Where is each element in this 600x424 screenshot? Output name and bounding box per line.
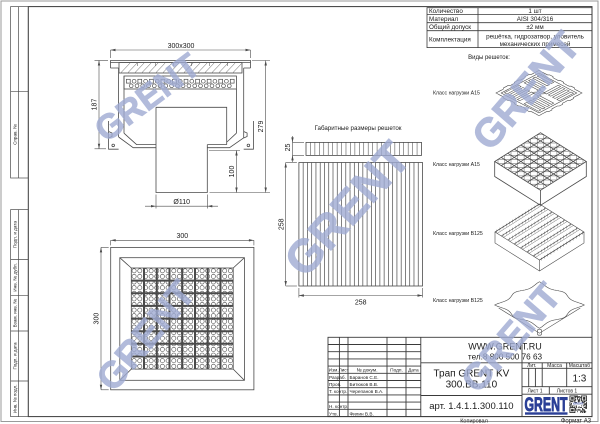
svg-text:Разраб.: Разраб. [329, 375, 346, 380]
svg-text:Лит.: Лит. [527, 363, 536, 369]
svg-text:Т. контр.: Т. контр. [329, 389, 347, 394]
svg-text:Н. контр.: Н. контр. [329, 404, 348, 409]
svg-text:25: 25 [285, 144, 292, 152]
svg-text:Материал: Материал [429, 16, 459, 23]
svg-text:258: 258 [355, 300, 367, 307]
svg-text:Подп. и дата: Подп. и дата [13, 221, 18, 249]
svg-text:№ докум.: № докум. [356, 368, 377, 374]
svg-text:Лист: Лист [339, 368, 350, 373]
svg-text:Справ. №: Справ. № [13, 124, 18, 145]
svg-text:258: 258 [278, 218, 285, 230]
svg-text:Подп. и дата: Подп. и дата [13, 342, 18, 370]
svg-text:Баранов С.Е.: Баранов С.Е. [350, 375, 379, 380]
svg-text:1 шт: 1 шт [528, 8, 541, 15]
svg-text:279: 279 [258, 121, 265, 133]
svg-text:Черепанов В.А.: Черепанов В.А. [350, 389, 384, 394]
svg-text:Габаритные размеры решеток: Габаритные размеры решеток [315, 125, 402, 132]
svg-text:Инв. № подл.: Инв. № подл. [13, 384, 18, 413]
svg-text:±2 мм: ±2 мм [526, 24, 543, 31]
svg-text:187: 187 [92, 99, 99, 111]
svg-text:Класс нагрузки В125: Класс нагрузки В125 [433, 298, 483, 304]
svg-text:AISI 304/316: AISI 304/316 [517, 16, 554, 23]
svg-text:Масштаб: Масштаб [569, 363, 591, 369]
svg-text:Взам. инв. №: Взам. инв. № [13, 299, 18, 328]
svg-text:Комплектация: Комплектация [429, 37, 471, 44]
svg-text:300: 300 [94, 313, 101, 325]
svg-text:Класс нагрузки А15: Класс нагрузки А15 [433, 91, 480, 97]
svg-text:Класс нагрузки В125: Класс нагрузки В125 [433, 231, 483, 237]
svg-text:Дата: Дата [408, 368, 419, 374]
svg-text:Инв. № дубл.: Инв. № дубл. [13, 263, 18, 291]
svg-text:Виды решеток:: Виды решеток: [468, 55, 510, 61]
svg-text:100: 100 [229, 166, 236, 178]
svg-text:Подп.: Подп. [390, 368, 403, 374]
svg-text:Класс нагрузки А15: Класс нагрузки А15 [433, 162, 480, 168]
svg-text:Филин В.В.: Филин В.В. [350, 411, 374, 416]
svg-text:Утв.: Утв. [329, 411, 338, 416]
svg-text:Формат А3: Формат А3 [561, 419, 592, 424]
svg-text:Пров.: Пров. [329, 382, 341, 387]
svg-text:Битюков В.В.: Битюков В.В. [350, 382, 379, 387]
svg-text:арт. 1.4.1.1.300.110: арт. 1.4.1.1.300.110 [429, 401, 513, 412]
svg-text:1:3: 1:3 [572, 374, 586, 385]
svg-text:Изм.: Изм. [329, 368, 339, 373]
svg-text:Копировал: Копировал [460, 419, 488, 424]
svg-text:Количество: Количество [429, 8, 463, 15]
svg-text:Ø110: Ø110 [173, 199, 190, 206]
svg-text:Общий допуск: Общий допуск [429, 23, 471, 31]
svg-text:300: 300 [176, 233, 188, 240]
svg-text:Масса: Масса [547, 363, 562, 369]
svg-text:GRENT: GRENT [573, 402, 584, 406]
